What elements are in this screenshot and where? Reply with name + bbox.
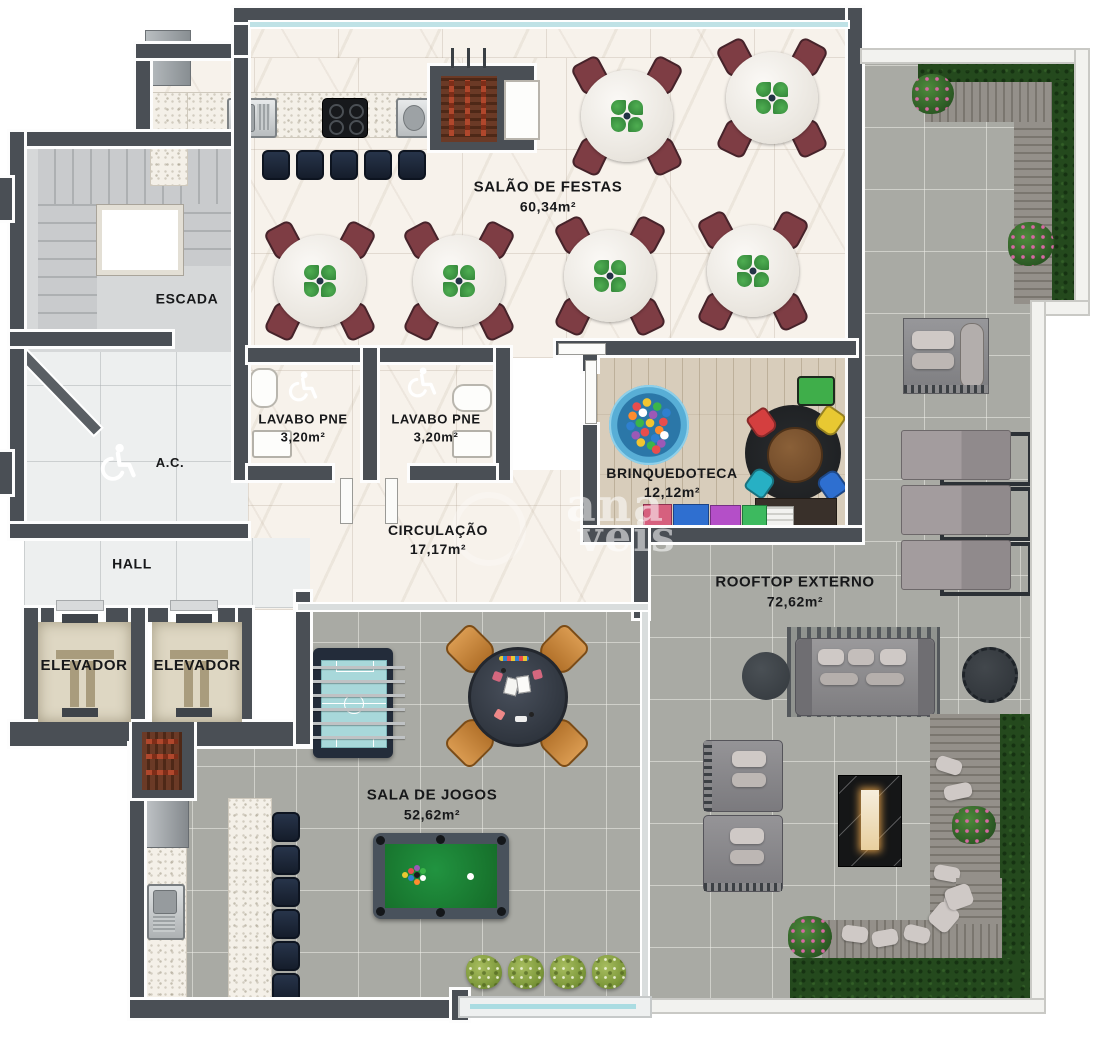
room-label-sala-jogos: SALA DE JOGOS52,62m²	[367, 785, 498, 824]
glass-wall-bottom	[458, 996, 652, 1018]
kitchen-sink-3	[147, 884, 185, 940]
room-label-elevador-1: ELEVADOR	[40, 656, 127, 676]
room-label-lavabo-2: LAVABO PNE3,20m²	[391, 410, 480, 445]
side-table	[962, 647, 1018, 703]
kids-table	[767, 427, 823, 483]
kitchen-cabinet	[145, 30, 191, 86]
bar-stool	[272, 941, 300, 971]
barbecue-grill	[441, 76, 497, 142]
glass-door	[585, 360, 597, 424]
wheelchair-icon	[285, 370, 319, 404]
wall	[130, 1000, 462, 1018]
bar-stool	[296, 150, 324, 180]
wall	[234, 58, 248, 480]
kids-activity-table	[797, 376, 835, 406]
counter-cabinet	[142, 792, 189, 848]
shrub	[592, 955, 626, 989]
toilet	[452, 384, 492, 412]
floor-transition	[298, 604, 648, 610]
stair-void	[97, 205, 183, 275]
wall	[234, 8, 862, 22]
elevator-sill	[176, 708, 212, 717]
shrub	[550, 955, 586, 989]
glass-partition	[642, 612, 648, 1002]
parapet	[645, 1000, 1044, 1012]
foosball-rod	[301, 736, 405, 739]
bar-stool	[272, 812, 300, 842]
wall	[136, 44, 248, 58]
foosball-rod	[301, 680, 405, 683]
fire-pit-table	[838, 775, 902, 867]
bar-stool	[272, 909, 300, 939]
wall	[0, 178, 12, 220]
table-centerpiece	[611, 100, 643, 132]
toy-cube-blue	[673, 504, 709, 531]
bar-stool	[272, 845, 300, 875]
foosball-rod	[301, 708, 405, 711]
sun-lounger	[901, 430, 1011, 480]
table-centerpiece	[304, 265, 336, 297]
skewer-handle	[467, 48, 470, 68]
bar-stool	[330, 150, 358, 180]
room-label-circulacao: CIRCULAÇÃO17,17m²	[388, 521, 488, 559]
wall	[496, 348, 510, 480]
toilet	[250, 368, 278, 408]
bar-stool	[272, 877, 300, 907]
room-label-elevador-2: ELEVADOR	[153, 656, 240, 676]
ball-pit	[608, 384, 690, 466]
room-label-hall: HALL	[112, 555, 152, 574]
bench-pillow	[841, 924, 869, 943]
wheelchair-icon	[96, 442, 138, 484]
bar-stool	[398, 150, 426, 180]
outdoor-sofa	[795, 638, 935, 716]
wheelchair-icon	[404, 366, 438, 400]
table-centerpiece	[443, 265, 475, 297]
wall	[248, 348, 510, 362]
glass-door	[558, 343, 606, 355]
table-centerpiece	[594, 260, 626, 292]
hedge-bottom	[790, 958, 1016, 1004]
island-counter	[228, 798, 272, 1010]
billiard-balls	[399, 861, 429, 889]
bar-stool	[272, 973, 300, 1003]
kitchen-sink-2	[396, 98, 434, 138]
room-label-ac: A.C.	[156, 454, 184, 472]
lavabo-door	[385, 478, 398, 524]
elevator-sill	[62, 614, 98, 623]
barbecue-side-counter	[504, 80, 540, 140]
wall	[410, 466, 496, 480]
foosball-rod	[301, 722, 405, 725]
bar-stool	[262, 150, 290, 180]
wall	[848, 8, 862, 542]
cooktop	[322, 98, 368, 138]
lounge-chair	[903, 318, 989, 394]
sun-lounger	[901, 540, 1011, 590]
foosball-table	[313, 648, 393, 758]
watermark-text-bottom: veis	[578, 512, 677, 561]
floor-plan: ana veis SALÃO DE FESTAS60,34m² ESCADA L…	[0, 0, 1100, 1038]
wall	[363, 348, 377, 480]
skewer-handle	[451, 48, 454, 68]
window-glass	[250, 22, 848, 27]
loveseat	[703, 815, 783, 892]
room-label-brinquedoteca: BRINQUEDOTECA12,12m²	[606, 464, 737, 502]
wall	[136, 44, 150, 140]
lavabo-door	[340, 478, 353, 524]
foosball-rod	[301, 666, 405, 669]
shrub	[466, 955, 502, 989]
barbecue-grill	[142, 732, 182, 790]
parapet	[1076, 50, 1088, 314]
wall	[10, 524, 248, 538]
table-centerpiece	[756, 82, 788, 114]
pool-table	[373, 833, 509, 919]
poker-table	[468, 647, 568, 747]
room-label-lavabo-1: LAVABO PNE3,20m²	[258, 410, 347, 445]
sun-lounger	[901, 485, 1011, 535]
shrub	[508, 955, 544, 989]
elevator-door	[56, 600, 104, 611]
loveseat	[703, 740, 783, 812]
side-table	[742, 652, 790, 700]
table-centerpiece	[737, 255, 769, 287]
wall	[0, 452, 12, 494]
wall	[10, 332, 172, 346]
parapet	[1032, 302, 1044, 1012]
hall-floor	[24, 538, 310, 608]
elevator-sill	[62, 708, 98, 717]
room-label-rooftop: ROOFTOP EXTERNO72,62m²	[715, 572, 874, 611]
wall	[248, 466, 332, 480]
stair-treads-left	[38, 204, 97, 330]
wall	[24, 608, 38, 736]
room-label-salao: SALÃO DE FESTAS60,34m²	[474, 177, 623, 216]
wall	[131, 608, 145, 736]
elevator-door	[170, 600, 218, 611]
wall	[296, 592, 310, 744]
stair-treads-top	[38, 140, 234, 204]
bar-stool	[364, 150, 392, 180]
parapet	[862, 50, 1088, 62]
wall	[10, 132, 248, 146]
skewer-handle	[483, 48, 486, 68]
foosball-rod	[301, 694, 405, 697]
elevator-sill	[176, 614, 212, 623]
room-label-escada: ESCADA	[156, 290, 219, 309]
